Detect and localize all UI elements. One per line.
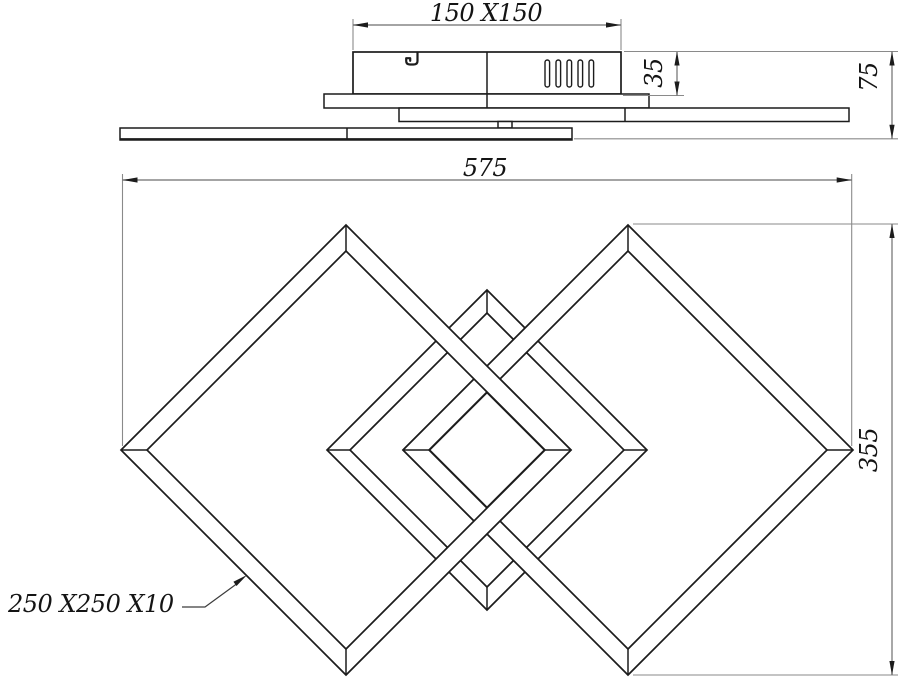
dim-label-overall-height: 355	[855, 428, 883, 472]
dim-label-canopy: 150 X150	[430, 0, 543, 27]
arrowhead-leader-icon	[233, 575, 247, 586]
arrowhead-down-icon	[889, 661, 894, 675]
arrowhead-down-icon	[889, 125, 894, 139]
arrowhead-left-icon	[353, 22, 368, 27]
drawing-canvas: 150 X150 35 75 575	[0, 0, 913, 681]
medium-diamond-band	[327, 290, 647, 610]
dimension-canopy: 150 X150	[353, 0, 621, 50]
vent-slot-icon	[567, 60, 572, 87]
arrowhead-down-icon	[674, 82, 679, 96]
frame-connector	[498, 122, 512, 129]
frame-spec-callout: 250 X250 X10	[7, 575, 247, 618]
medium-diamond-frame	[327, 290, 647, 610]
vent-slot-icon	[578, 60, 583, 87]
side-view	[120, 52, 849, 140]
dim-label-canopy-height: 35	[640, 58, 668, 88]
arrowhead-left-icon	[123, 177, 138, 182]
vent-slot-icon	[556, 60, 561, 87]
technical-drawing-svg: 150 X150 35 75 575	[0, 0, 913, 681]
leader-line	[182, 584, 237, 607]
vent-slot-icon	[589, 60, 594, 87]
frame-layer2-bar	[399, 108, 849, 122]
plan-view	[121, 225, 853, 675]
arrowhead-up-icon	[889, 224, 894, 238]
arrowhead-right-icon	[606, 22, 621, 27]
arrowhead-up-icon	[889, 52, 894, 66]
arrowhead-up-icon	[674, 52, 679, 66]
dim-label-fixture-height: 75	[855, 62, 883, 92]
arrowhead-right-icon	[837, 177, 852, 182]
dimension-canopy-height: 35	[623, 52, 684, 96]
frame-spec-label: 250 X250 X10	[7, 590, 174, 618]
vent-slot-icon	[545, 60, 550, 87]
dim-label-overall-width: 575	[463, 154, 507, 182]
